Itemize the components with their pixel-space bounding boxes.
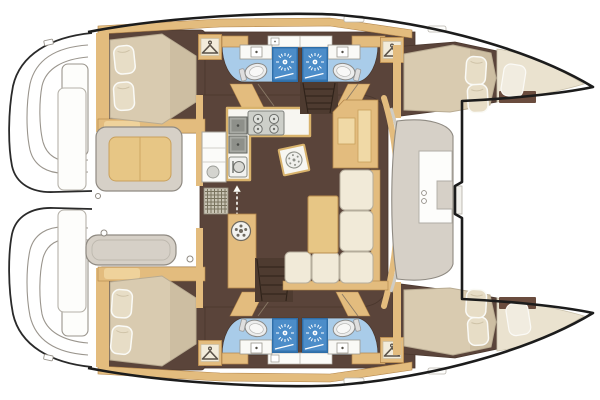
head-cabinet <box>222 353 248 364</box>
floorplan-svg <box>0 0 600 400</box>
shower-stall <box>303 319 328 353</box>
nav-desk <box>333 100 378 168</box>
burner-dot <box>273 128 275 130</box>
washer-dot <box>239 229 243 233</box>
shower-stall <box>303 48 328 82</box>
pillow <box>111 289 133 318</box>
burner-dot <box>257 128 259 130</box>
sofa-cushion <box>340 170 373 210</box>
counter-hatch <box>271 355 279 362</box>
washer-dot <box>243 234 246 237</box>
bow-pillow <box>505 302 532 337</box>
salon-aft-wall <box>196 228 203 308</box>
fridge-unit <box>202 132 226 182</box>
faucet-dot-icon <box>341 51 343 53</box>
counter-dot <box>274 41 276 43</box>
nav-desk-panel <box>358 110 371 162</box>
pillow <box>113 45 136 75</box>
cup-holder <box>422 191 427 196</box>
hatch-pull <box>96 194 101 199</box>
hatch-pull <box>187 256 193 262</box>
fwd-bulkhead <box>393 282 401 355</box>
wardrobe-hanger-icon <box>198 340 221 365</box>
pillow <box>113 82 135 111</box>
washer-column <box>228 214 256 288</box>
stove-icon <box>248 111 284 135</box>
bow-pillow <box>500 63 527 98</box>
pillow <box>465 56 487 85</box>
shower-stall <box>273 48 298 82</box>
burner-dot <box>273 118 275 120</box>
walkway-locker-starboard <box>58 210 86 312</box>
pillow <box>467 317 489 346</box>
wardrobe-hanger-icon <box>198 34 221 59</box>
pillow <box>465 289 486 318</box>
shower-stall <box>273 319 298 353</box>
hatch-pull <box>101 230 107 236</box>
bow-pillow-shape <box>500 63 527 98</box>
drain-dot <box>237 124 240 127</box>
catamaran-floorplan <box>0 0 600 400</box>
fwd-cockpit <box>391 108 462 292</box>
fwd-bulkhead <box>393 45 401 118</box>
sofa-cushion <box>340 252 373 283</box>
walkway-locker-port <box>58 88 86 190</box>
washer-dot <box>244 228 247 231</box>
washer-dot <box>240 225 243 228</box>
sink-counter <box>328 340 360 354</box>
sink-counter <box>328 45 360 59</box>
faucet-dot-icon <box>255 51 257 53</box>
oven-door <box>234 162 245 173</box>
drain-dot <box>237 143 240 146</box>
fridge-dial <box>207 166 219 178</box>
faucet-dot-icon <box>341 347 343 349</box>
washer-dot <box>237 234 240 237</box>
cabin-frame-left <box>96 268 109 367</box>
bow-pillow-shape <box>505 302 532 337</box>
sink-counter <box>240 340 272 354</box>
faucet-dot-icon <box>255 347 257 349</box>
sink-counter <box>240 45 272 59</box>
stairs-to-port-hull <box>300 82 338 114</box>
sofa-cushion <box>312 252 339 283</box>
washer-dot <box>235 228 238 231</box>
round-sink-slab <box>279 145 310 176</box>
oven-icon <box>229 157 247 177</box>
cabin-frame-left <box>96 33 109 132</box>
entry-grate <box>204 188 228 214</box>
pillow <box>467 84 488 113</box>
salon-table <box>308 196 338 253</box>
cup-holder <box>422 199 427 204</box>
sofa-cushion <box>285 252 311 283</box>
aft-bench <box>86 235 176 265</box>
nav-desk-panel <box>338 118 355 144</box>
pillow <box>110 325 133 355</box>
burner-dot <box>257 118 259 120</box>
stove-top <box>248 111 284 135</box>
cabin-seat-pad <box>104 268 140 279</box>
sofa-cushion <box>340 211 373 251</box>
